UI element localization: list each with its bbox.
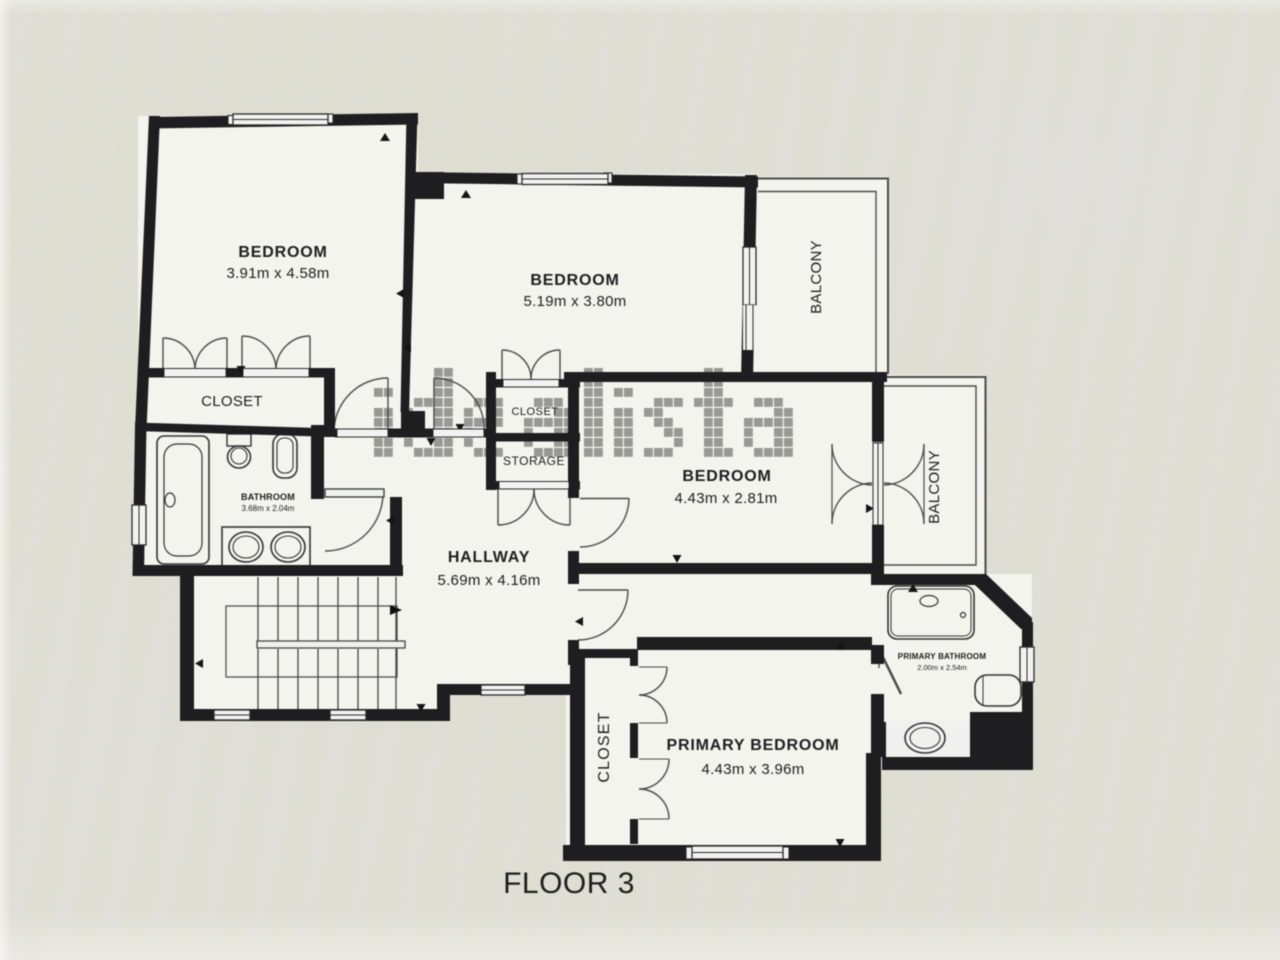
svg-text:5.19m x 3.80m: 5.19m x 3.80m: [523, 293, 626, 310]
svg-text:2.00m x 2.54m: 2.00m x 2.54m: [917, 663, 967, 672]
svg-text:BALCONY: BALCONY: [808, 240, 825, 314]
svg-text:STORAGE: STORAGE: [503, 454, 565, 468]
svg-text:BATHROOM: BATHROOM: [241, 492, 295, 502]
svg-text:BALCONY: BALCONY: [926, 450, 943, 524]
svg-text:5.69m x 4.16m: 5.69m x 4.16m: [437, 572, 540, 589]
svg-text:BEDROOM: BEDROOM: [682, 468, 771, 485]
svg-text:3.91m x 4.58m: 3.91m x 4.58m: [226, 265, 329, 282]
svg-text:PRIMARY BEDROOM: PRIMARY BEDROOM: [667, 737, 840, 754]
svg-text:PRIMARY BATHROOM: PRIMARY BATHROOM: [898, 652, 987, 661]
svg-text:CLOSET: CLOSET: [511, 406, 558, 418]
svg-text:3.68m x 2.04m: 3.68m x 2.04m: [242, 504, 295, 513]
svg-text:CLOSET: CLOSET: [596, 711, 613, 782]
svg-text:BEDROOM: BEDROOM: [530, 272, 619, 289]
svg-text:CLOSET: CLOSET: [201, 393, 263, 410]
svg-text:4.43m x 3.96m: 4.43m x 3.96m: [701, 761, 804, 778]
svg-text:4.43m x 2.81m: 4.43m x 2.81m: [674, 490, 777, 507]
svg-text:FLOOR 3: FLOOR 3: [503, 867, 635, 900]
svg-text:BEDROOM: BEDROOM: [238, 244, 327, 261]
svg-text:HALLWAY: HALLWAY: [448, 549, 530, 566]
